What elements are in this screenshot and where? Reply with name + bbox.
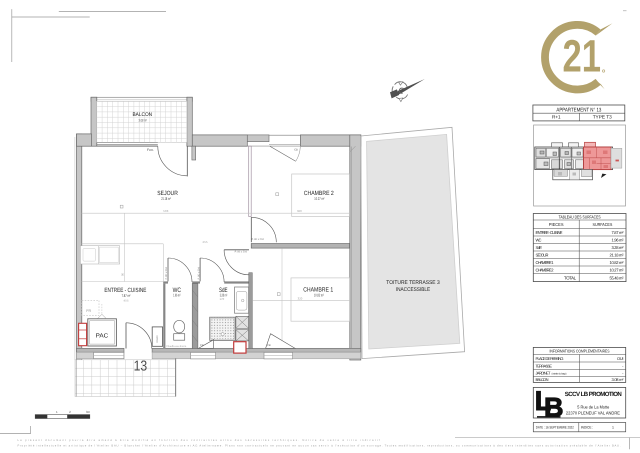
svg-text:5 Rue de La Motte: 5 Rue de La Motte — [577, 404, 610, 409]
svg-text:TYPE T3: TYPE T3 — [593, 115, 612, 121]
svg-text:P. 80 x 204: P. 80 x 204 — [165, 267, 168, 280]
svg-text:B: B — [544, 393, 564, 423]
svg-text:1.96 m²: 1.96 m² — [173, 293, 181, 298]
svg-text:WC: WC — [536, 237, 542, 242]
svg-text:TOTAL: TOTAL — [564, 275, 577, 280]
svg-text:ENTREE - CUISINE: ENTREE - CUISINE — [536, 230, 563, 235]
svg-text:60x60: 60x60 — [156, 335, 159, 343]
svg-text:JARDINET: JARDINET — [536, 371, 552, 376]
svg-text:CHAMBRE 1: CHAMBRE 1 — [536, 260, 555, 265]
svg-text:PLACE DE PARKING: PLACE DE PARKING — [536, 356, 564, 361]
svg-text:10.27 m²: 10.27 m² — [314, 196, 324, 201]
svg-text:CB: CB — [200, 344, 204, 347]
svg-text:21.18 m²: 21.18 m² — [610, 253, 625, 258]
svg-text:21.18 m²: 21.18 m² — [161, 196, 171, 201]
svg-text:BALCON: BALCON — [536, 377, 549, 382]
svg-text:10.27 m²: 10.27 m² — [610, 268, 625, 273]
svg-text:BALCON: BALCON — [133, 112, 153, 118]
svg-text:( entretien à charge): ( entretien à charge) — [552, 373, 567, 376]
svg-text:INDICE :: INDICE : — [581, 426, 594, 430]
svg-text:3.28 m²: 3.28 m² — [612, 245, 625, 250]
svg-text:455: 455 — [124, 298, 129, 302]
svg-text:FR: FR — [86, 309, 91, 313]
svg-text:SCCV LB PROMOTION: SCCV LB PROMOTION — [565, 391, 622, 398]
svg-text:R+1: R+1 — [552, 115, 561, 121]
svg-text:CB: CB — [267, 344, 271, 347]
svg-text:INFORMATIONS COMPLEMENTAIRES: INFORMATIONS COMPLEMENTAIRES — [550, 348, 610, 353]
svg-text:PAC: PAC — [96, 332, 109, 339]
svg-text:7.87 m²: 7.87 m² — [612, 230, 625, 235]
svg-text:Le présent document pourra êtr: Le présent document pourra être amené à … — [18, 439, 380, 442]
svg-text:320: 320 — [297, 209, 302, 213]
svg-text:13: 13 — [134, 359, 148, 375]
svg-text:CHAMBRE 2: CHAMBRE 2 — [536, 268, 555, 273]
svg-text:APPARTEMENT N° 13: APPARTEMENT N° 13 — [556, 107, 601, 113]
svg-text:320: 320 — [298, 297, 303, 301]
svg-text:Propriété intellectuelle et ar: Propriété intellectuelle et artistique d… — [18, 445, 621, 448]
svg-text:CB: CB — [294, 148, 298, 151]
svg-text:P. 80 x 204: P. 80 x 204 — [235, 250, 248, 253]
svg-text:10.82 m²: 10.82 m² — [314, 292, 324, 297]
svg-text:Chauffe-eau therm.: Chauffe-eau therm. — [166, 345, 187, 348]
svg-text:SEJOUR: SEJOUR — [536, 253, 549, 258]
svg-text:TERRASSE: TERRASSE — [536, 363, 553, 368]
svg-text:TOITURE TERRASSE 3: TOITURE TERRASSE 3 — [386, 280, 439, 286]
svg-text:3.08 m²: 3.08 m² — [612, 377, 625, 382]
svg-text:90: 90 — [121, 272, 125, 276]
svg-text:1: 1 — [612, 426, 614, 430]
svg-text:SdE: SdE — [536, 245, 543, 250]
svg-text:Fen.: Fen. — [147, 148, 154, 152]
svg-text:3.28 m²: 3.28 m² — [220, 293, 228, 298]
svg-text:170: 170 — [219, 297, 224, 301]
svg-text:3.08 m²: 3.08 m² — [139, 118, 148, 122]
svg-text:TABLEAU DES SURFACES: TABLEAU DES SURFACES — [559, 214, 601, 219]
svg-text:22370 PLENEUF VAL ANDRE: 22370 PLENEUF VAL ANDRE — [566, 411, 620, 416]
svg-text:INACCESSIBLE: INACCESSIBLE — [396, 287, 431, 293]
svg-text:21: 21 — [563, 31, 602, 82]
svg-text:503: 503 — [163, 209, 168, 213]
svg-text:1.96 m²: 1.96 m² — [612, 237, 625, 242]
svg-text:P. 80 x 204: P. 80 x 204 — [197, 267, 200, 280]
svg-text:P. 80 x 204: P. 80 x 204 — [252, 238, 265, 241]
svg-text:OUI: OUI — [617, 356, 624, 361]
svg-text:7.87 m²: 7.87 m² — [122, 293, 131, 298]
svg-text:DATE : 16 SEPTEMBRE 2022: DATE : 16 SEPTEMBRE 2022 — [536, 426, 574, 430]
svg-text:255: 255 — [203, 240, 208, 244]
svg-text:10.82 m²: 10.82 m² — [610, 260, 625, 265]
svg-text:3m: 3m — [86, 410, 91, 414]
svg-text:55.48 m²: 55.48 m² — [610, 275, 625, 280]
svg-text:SURFACES: SURFACES — [593, 222, 613, 227]
svg-text:PIECES: PIECES — [549, 222, 564, 227]
